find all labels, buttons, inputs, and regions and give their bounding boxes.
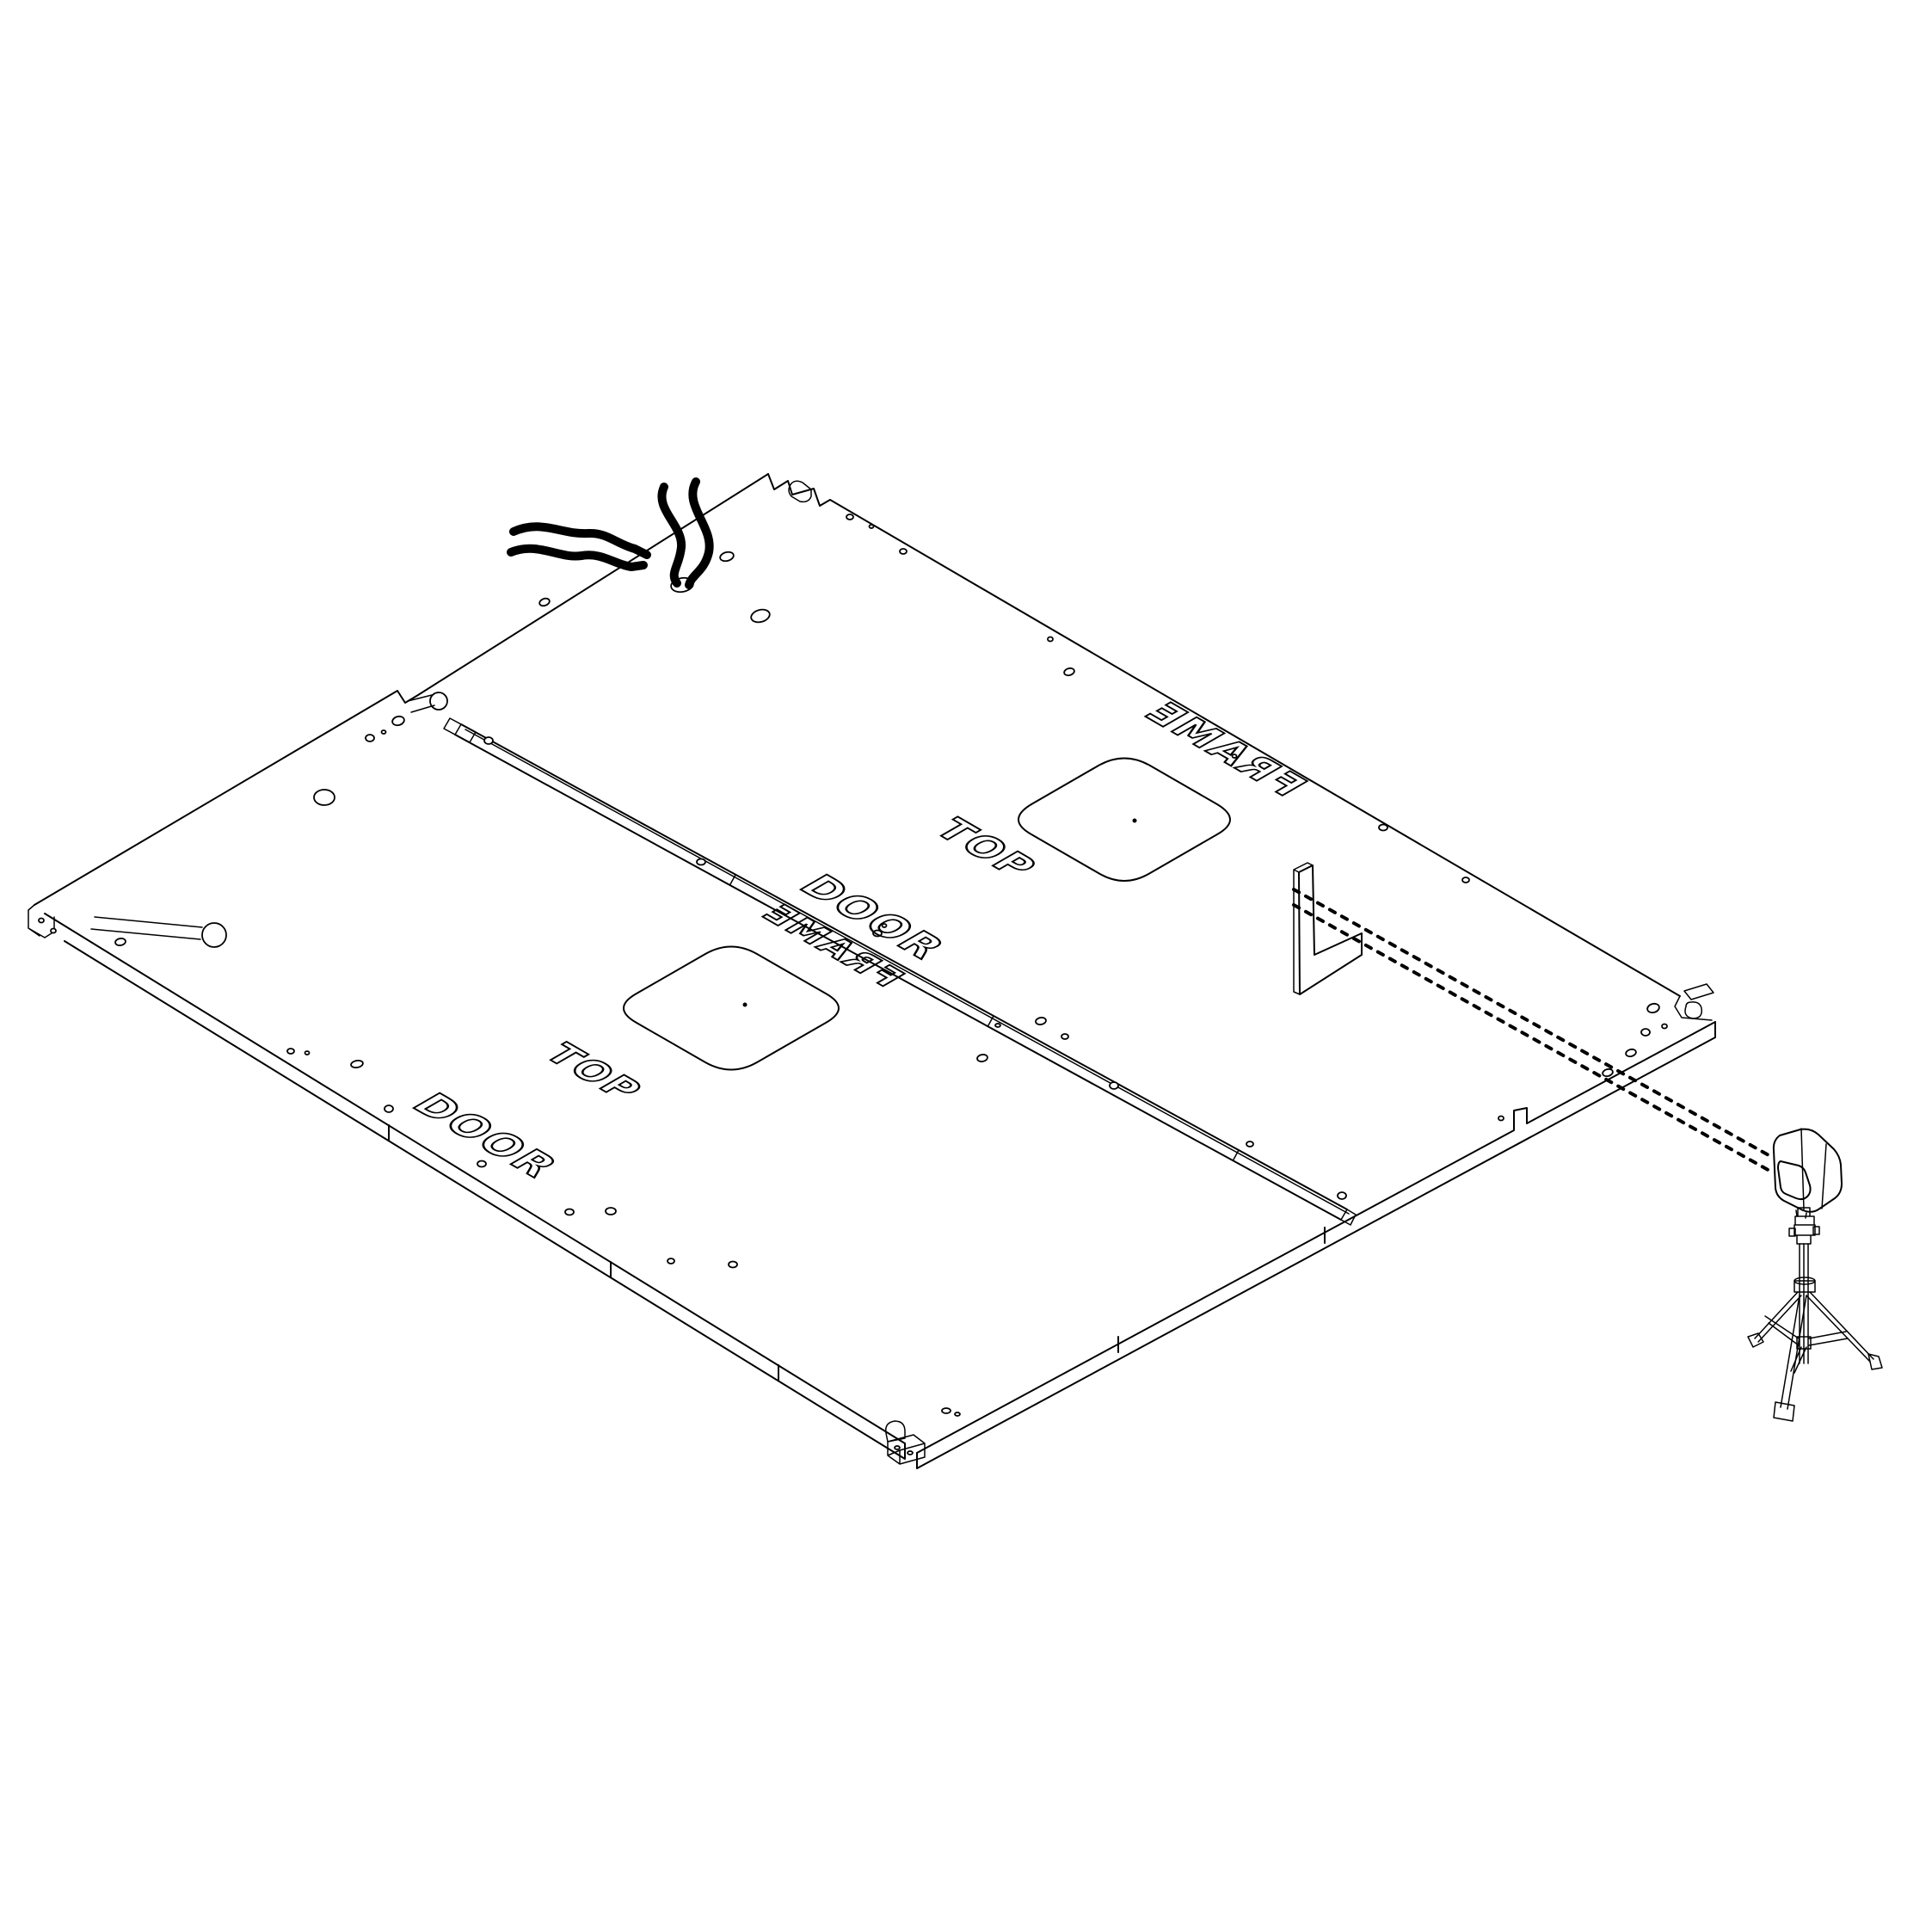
hole (1048, 637, 1053, 642)
tripod-head (1774, 1129, 1842, 1212)
hole (900, 549, 907, 554)
panel-top-left-edge (34, 474, 768, 905)
hole (719, 551, 735, 563)
hole (538, 597, 551, 607)
hole (942, 1408, 951, 1413)
panel-bottom-left-thickness (65, 941, 905, 1459)
corner-slot (91, 917, 202, 939)
mount-knuckle (1794, 1208, 1815, 1244)
laser-beam-lower (1294, 905, 1771, 1172)
corner-tab (1684, 984, 1714, 1000)
tripod-leg-left (1755, 1292, 1801, 1342)
corner-hook (886, 1421, 905, 1442)
drawing-canvas: DOOR TOP FRAME DOOR TOP FRAME (0, 0, 1932, 1932)
hole (1061, 1034, 1068, 1039)
hole (287, 1049, 294, 1054)
head-body (1774, 1129, 1842, 1212)
hole (565, 1209, 574, 1215)
pilot-holes (39, 514, 1667, 1455)
hole (976, 1054, 988, 1062)
hole (1246, 1141, 1253, 1147)
hole (1498, 1117, 1504, 1121)
hole (1646, 1002, 1660, 1013)
hole (114, 938, 126, 946)
cutout-center-mark (1133, 819, 1137, 823)
panel-cutout-upper (1018, 759, 1230, 882)
tripod-leg-right (1806, 1292, 1874, 1362)
corner-hook (1685, 1002, 1701, 1018)
panel-bottom-left-edge (45, 914, 905, 1443)
tripod-foot-left (1748, 1333, 1763, 1347)
hole (1662, 1024, 1667, 1029)
hole (1625, 1049, 1637, 1058)
hole (1063, 668, 1075, 677)
right-corner-block (1675, 984, 1714, 1020)
laser-beam-upper (1294, 889, 1770, 1156)
hole (606, 1208, 616, 1215)
hole (955, 1412, 960, 1416)
hole (846, 514, 853, 520)
keyhole (202, 923, 226, 947)
cutout-outline (624, 947, 839, 1070)
hole (908, 1451, 913, 1455)
lower-panel-door-label: DOOR (402, 1087, 570, 1184)
isometric-drawing: DOOR TOP FRAME DOOR TOP FRAME (0, 0, 1932, 1932)
engraved-labels: DOOR TOP FRAME DOOR TOP FRAME (402, 695, 1318, 1184)
hole (1035, 1017, 1046, 1025)
column-collar (1794, 1281, 1815, 1292)
hole (51, 929, 56, 933)
hole (350, 1060, 363, 1068)
hole (995, 1024, 1000, 1027)
panel-bottom-right-thickness (917, 1022, 1715, 1468)
lower-panel-top-label: TOP (534, 1038, 653, 1107)
wire-left-2 (511, 549, 643, 567)
corner-block-outline (1675, 996, 1712, 1020)
alignment-bracket (1294, 863, 1362, 994)
hole (750, 607, 772, 624)
hole (1641, 1029, 1650, 1036)
hole (1602, 1068, 1614, 1078)
hole (668, 1258, 674, 1264)
hole (1338, 1192, 1346, 1199)
tripod-legs (1748, 1292, 1882, 1421)
hole (39, 919, 44, 923)
hole (314, 790, 335, 805)
hole (697, 859, 705, 865)
tripod-foot-front (1774, 1402, 1794, 1421)
hole (385, 1105, 393, 1112)
hole (870, 525, 874, 528)
hole (366, 735, 374, 741)
tripod-leg-front (1781, 1295, 1806, 1409)
hole (1379, 825, 1387, 831)
upper-panel-frame-label-mirrored: FRAME (1132, 695, 1317, 802)
apex-tab (789, 481, 811, 501)
panel-cutout-lower (624, 947, 839, 1070)
cutout-center-mark (743, 1003, 748, 1007)
wire-right-2 (689, 482, 710, 585)
pin-hole (430, 692, 447, 710)
hole (1462, 877, 1469, 883)
hole (391, 715, 405, 726)
bracket-front-face (1299, 865, 1362, 994)
hole (305, 1051, 310, 1055)
rail-start-pin (408, 692, 447, 712)
column-pole (1800, 1244, 1808, 1363)
tripod-mount (1789, 1208, 1819, 1244)
left-corner-block (28, 905, 226, 947)
hole (729, 1262, 737, 1268)
hole (1110, 1082, 1118, 1089)
hole (477, 1161, 486, 1167)
hole (895, 1446, 900, 1449)
wire-bundles (511, 482, 710, 594)
cutout-outline (1018, 759, 1230, 882)
laser-level-tripod (1748, 1129, 1882, 1421)
hole (484, 737, 493, 744)
panel-bottom-right-edge (917, 1022, 1715, 1453)
hole (382, 730, 386, 734)
upper-panel-top-label: TOP (925, 812, 1049, 884)
corner-block-outline (888, 1435, 925, 1464)
